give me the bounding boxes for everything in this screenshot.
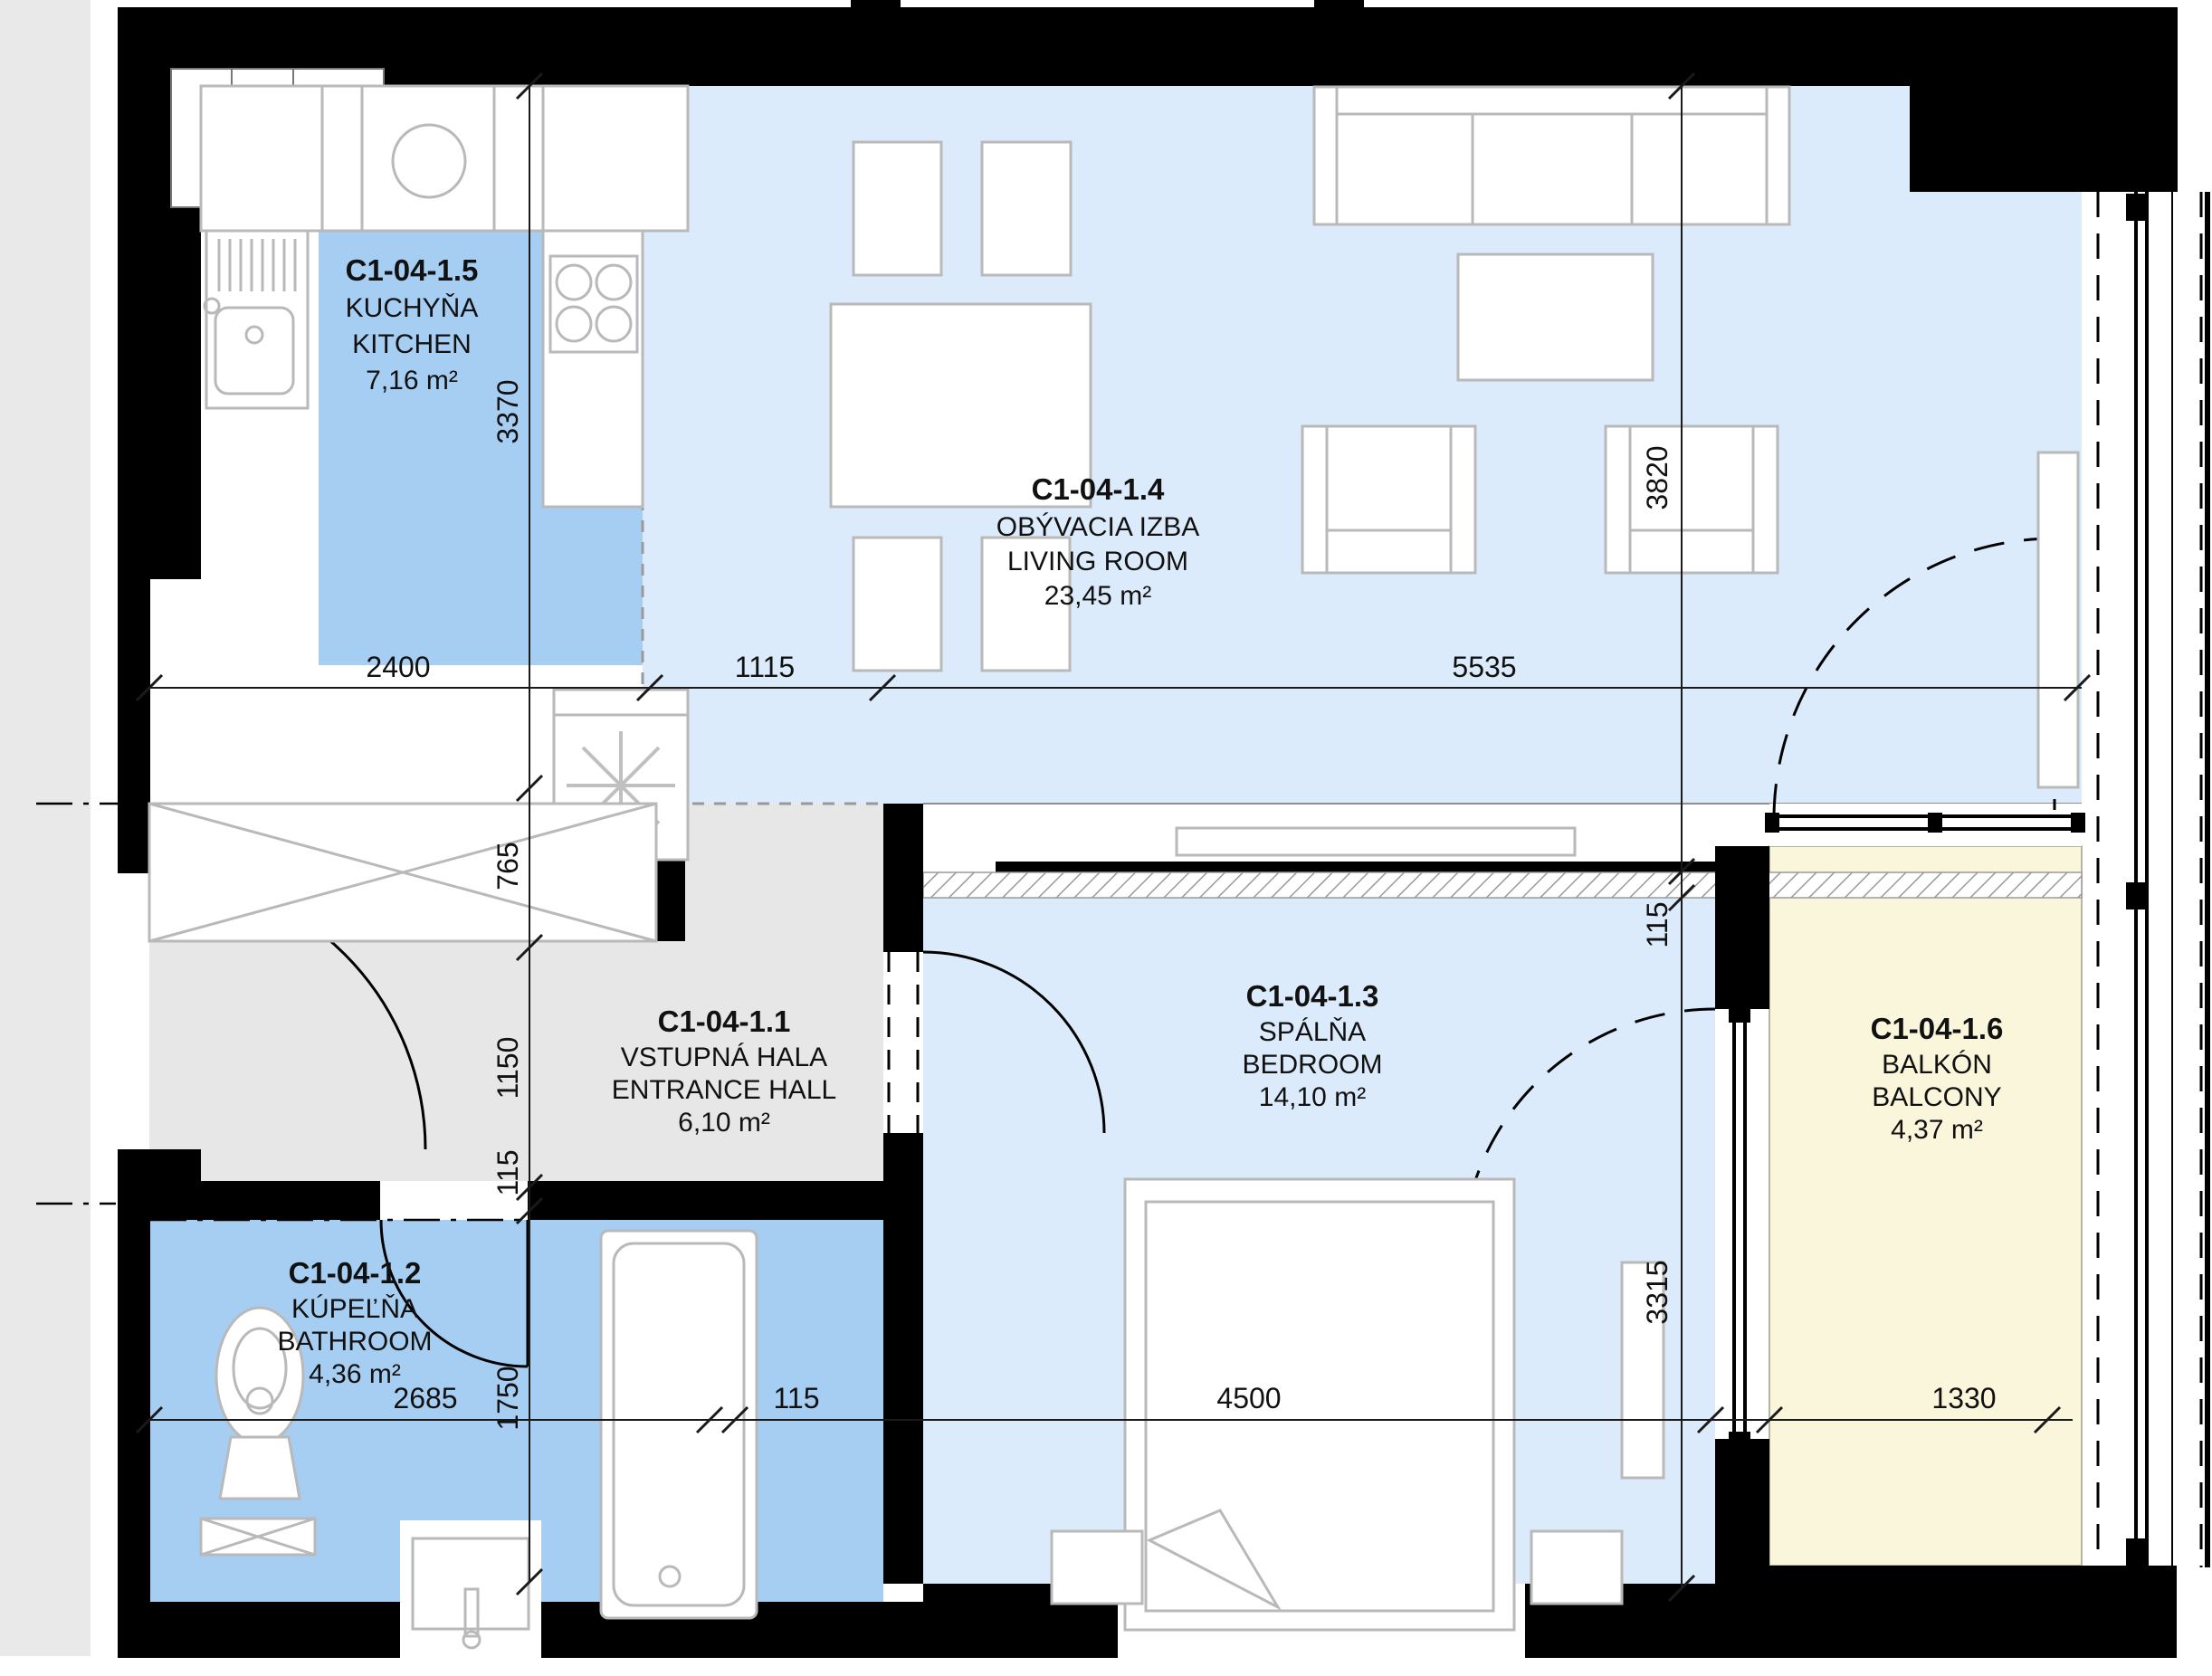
balcony-glass-mullion-l [1765,813,1779,833]
bedroom-name-local: SPÁLŇA [1259,1017,1366,1047]
dim-1330: 1330 [1931,1382,1996,1414]
dim-115-left: 115 [491,1149,524,1195]
wall-hall-bedroom-lower [883,1133,923,1220]
dim-4500: 4500 [1216,1382,1281,1414]
kitchen-counter [201,86,688,231]
wall-hall-bath-right [528,1181,923,1220]
bedroom-door-mullion-bottom [1729,1432,1750,1452]
balcony-glass-mullion-r [2071,813,2085,833]
hall-code: C1-04-1.1 [658,1005,791,1038]
chair-2 [982,142,1071,275]
nightstand-left [1052,1531,1142,1604]
wall-hall-bath-left [118,1181,380,1220]
dim-765: 765 [491,842,524,890]
bathroom-name-local: KÚPEĽŇA [291,1294,418,1324]
dim-1150: 1150 [491,1037,524,1100]
wall-hall-bedroom-upper [883,804,923,952]
armchair-1 [1302,426,1475,573]
dim-5535: 5535 [1452,651,1516,683]
wall-right-edge [2205,192,2210,1567]
wall-top-right-corner [1910,7,2178,192]
wall-bath-bedroom [883,1220,923,1584]
living-name-en: LIVING ROOM [1007,547,1188,576]
window-mullion-bottom [2126,1538,2148,1566]
floor-plan-page: 2400 1115 5535 2685 115 4500 1330 3370 7… [0,0,2212,1676]
bedroom-balcony-door-gap [1717,1009,1768,1439]
hall-name-en: ENTRANCE HALL [612,1075,836,1105]
dim-115-right: 115 [1641,901,1673,948]
wall-nub-1 [851,0,901,8]
label-bedroom: C1-04-1.3 SPÁLŇA BEDROOM 14,10 m² [1242,979,1382,1112]
wall-bottom-right [1715,1566,2177,1658]
wall-bathroom-left [118,1220,150,1602]
dim-2400: 2400 [366,651,430,683]
balcony-floor [1769,846,2082,1566]
coffee-table [1458,254,1653,380]
balcony-glass-mullion-m [1928,813,1942,833]
partition-hatched-wall [923,872,2082,898]
living-code: C1-04-1.4 [1032,472,1165,506]
tv-board [2038,452,2078,787]
wall-top [118,7,1910,86]
floor-plan-drawing: 2400 1115 5535 2685 115 4500 1330 3370 7… [0,0,2212,1676]
left-margin-strip [0,0,91,1656]
balcony-window-sill [1769,804,2082,846]
bathroom-name-en: BATHROOM [277,1327,432,1357]
balcony-code: C1-04-1.6 [1871,1012,2004,1045]
bed [1125,1179,1514,1630]
kitchen-area: 7,16 m² [366,366,458,395]
sliding-door-track [996,862,1720,872]
dim-3370: 3370 [491,379,524,443]
hall-area: 6,10 m² [678,1108,770,1138]
hall-name-local: VSTUPNÁ HALA [621,1043,827,1072]
kitchen-name-local: KUCHYŇA [346,293,479,323]
balcony-name-en: BALCONY [1872,1082,2001,1112]
hall-wardrobe [149,804,656,941]
sofa [1314,87,1789,224]
kitchen-name-en: KITCHEN [352,329,472,359]
wall-balcony-lower [1715,1439,1769,1566]
dim-1750: 1750 [491,1366,524,1430]
nightstand-right [1531,1531,1622,1604]
wall-nub-2 [1314,0,1364,8]
balcony-name-local: BALKÓN [1882,1050,1992,1080]
kitchen-code: C1-04-1.5 [346,253,479,287]
bathtub [601,1231,757,1618]
chair-3 [853,538,941,671]
bedroom-name-en: BEDROOM [1242,1050,1382,1080]
chair-1 [853,142,941,275]
bedroom-area: 14,10 m² [1259,1082,1366,1112]
window-mullion-mid [2126,882,2148,909]
balcony-area: 4,37 m² [1891,1115,1983,1145]
living-name-local: OBÝVACIA IZBA [996,512,1200,542]
dim-3315: 3315 [1641,1260,1673,1324]
wall-balcony-upper [1715,846,1769,1009]
dim-2685: 2685 [393,1382,457,1414]
dim-1115: 1115 [735,651,795,683]
toilet-tank [220,1437,300,1499]
bathroom-code: C1-04-1.2 [289,1256,422,1290]
living-area: 23,45 m² [1044,581,1151,611]
wall-left-above-door [118,804,150,873]
bathroom-area: 4,36 m² [309,1359,401,1389]
window-mullion-top [2126,194,2148,221]
bedroom-door-mullion-top [1729,1003,1750,1023]
dim-3820: 3820 [1641,445,1673,509]
dim-115-bottom: 115 [773,1382,819,1414]
bedroom-code: C1-04-1.3 [1246,979,1379,1013]
wall-shelf [1177,828,1575,855]
